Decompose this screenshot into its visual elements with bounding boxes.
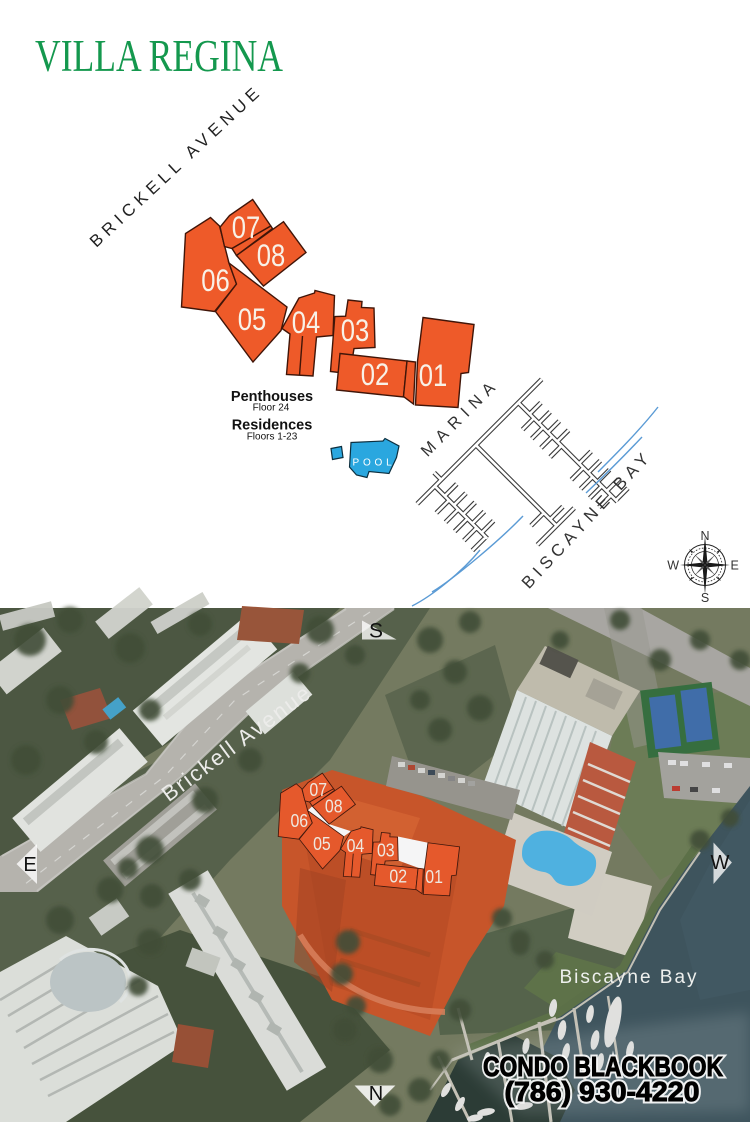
svg-text:04: 04	[292, 304, 321, 340]
svg-text:Floor 24: Floor 24	[253, 403, 290, 414]
svg-text:03: 03	[341, 312, 370, 348]
svg-text:08: 08	[257, 237, 286, 273]
svg-text:E: E	[23, 854, 36, 876]
svg-text:(786) 930-4220: (786) 930-4220	[505, 1076, 700, 1107]
svg-text:05: 05	[238, 301, 267, 337]
svg-text:02: 02	[361, 356, 390, 392]
svg-text:W: W	[667, 559, 679, 573]
svg-text:Floors 1-23: Floors 1-23	[247, 432, 298, 443]
svg-text:Biscayne Bay: Biscayne Bay	[559, 967, 698, 988]
svg-text:S: S	[369, 620, 383, 643]
svg-text:06: 06	[201, 262, 230, 298]
svg-text:S: S	[701, 591, 709, 605]
svg-text:W: W	[711, 852, 730, 874]
svg-text:VILLA REGINA: VILLA REGINA	[35, 31, 283, 81]
svg-text:N: N	[369, 1083, 383, 1105]
svg-text:N: N	[700, 529, 709, 543]
svg-text:01: 01	[419, 357, 448, 393]
svg-text:E: E	[731, 559, 739, 573]
svg-text:POOL: POOL	[353, 458, 396, 469]
